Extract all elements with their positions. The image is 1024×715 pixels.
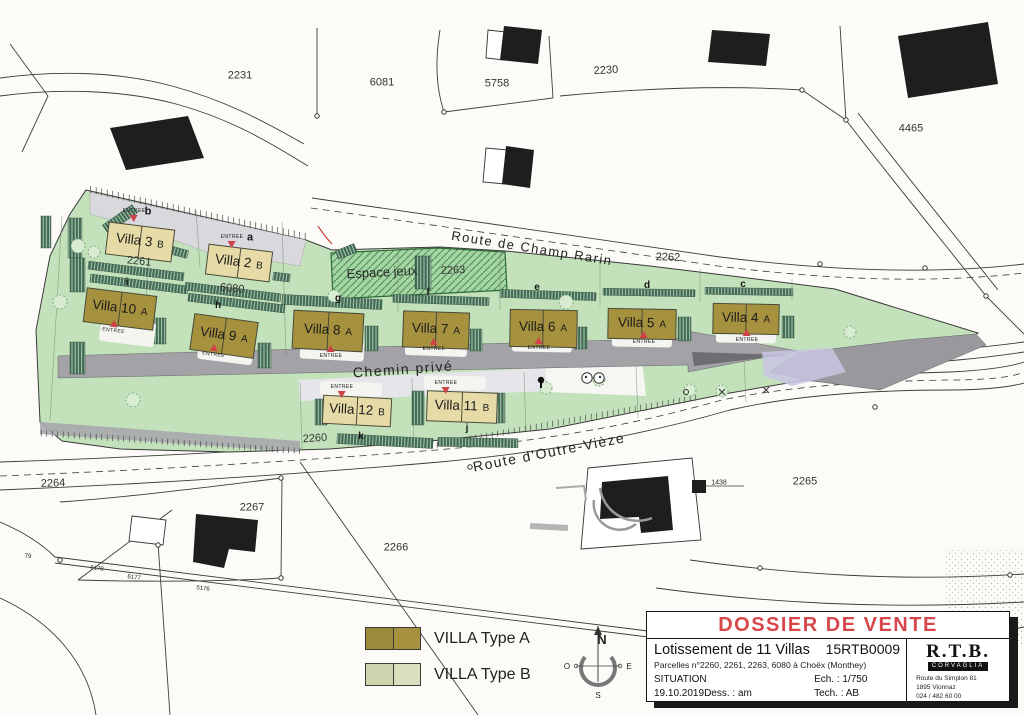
- site-plan-drawing: [0, 0, 1024, 715]
- parcel-label-2263: 2263: [441, 265, 466, 277]
- playground-label: Espace jeux: [346, 264, 417, 281]
- entrance-label: ENTREE: [736, 337, 759, 342]
- title-block-info: Lotissement de 11 Villas 15RTB0009 Parce…: [647, 639, 906, 701]
- entrance-marker-villa-5: ENTREE: [631, 331, 658, 345]
- compass-east-label: E: [626, 662, 631, 671]
- entrance-triangle-icon: [743, 329, 751, 336]
- villa-name: Villa 4: [722, 310, 759, 326]
- project-name: Lotissement de 11 Villas: [654, 642, 810, 658]
- villa-8-label: Villa 8A: [304, 322, 353, 339]
- entrance-label: ENTREE: [123, 208, 146, 213]
- company-address: Route du Simplon 81 1895 Vionnaz 024 / 4…: [912, 674, 977, 701]
- parcel-label-6081: 6081: [370, 78, 394, 89]
- legend-label-type-a: VILLA Type A: [434, 630, 530, 648]
- entrance-label: ENTREE: [221, 234, 244, 239]
- entrance-label: ENTREE: [435, 380, 458, 385]
- entrance-triangle-icon: [442, 387, 450, 394]
- strip-letter-b: b: [145, 207, 152, 218]
- entrance-marker-villa-4: ENTREE: [734, 329, 761, 343]
- villa-type: A: [345, 327, 352, 338]
- villa-6-label: Villa 6A: [519, 320, 567, 335]
- villa-name: Villa 12: [329, 401, 374, 418]
- parcel-label-2262: 2262: [656, 252, 681, 264]
- entrance-marker-a: ENTREE: [219, 234, 246, 248]
- parcel-label-2230: 2230: [593, 65, 618, 77]
- entrance-marker-villa-7: ENTREE: [421, 338, 448, 352]
- title-block-header: DOSSIER DE VENTE: [647, 612, 1009, 639]
- villa-type: B: [482, 403, 489, 414]
- parcel-label-2265: 2265: [793, 477, 817, 488]
- company-logo-bar: CORVAGLIA: [928, 662, 988, 671]
- entrance-label: ENTREE: [633, 339, 656, 344]
- parcel-label-2231: 2231: [228, 71, 252, 82]
- company-box: R.T.B. CORVAGLIA Route du Simplon 81 189…: [906, 639, 1009, 701]
- entrance-triangle-icon: [327, 345, 335, 352]
- parcel-label-2260: 2260: [302, 433, 327, 446]
- legend-row-type-a: VILLA Type A: [365, 627, 531, 650]
- strip-letter-c: c: [740, 280, 746, 290]
- scale-label: Ech. : 1/750: [814, 674, 900, 685]
- entrance-triangle-icon: [430, 338, 438, 345]
- villa-type-b-swatch: [365, 663, 421, 686]
- villa-name: Villa 11: [434, 397, 478, 413]
- entrance-label: ENTREE: [528, 345, 551, 350]
- entrance-triangle-icon: [338, 391, 346, 398]
- villa-type: A: [560, 323, 567, 334]
- villa-type: A: [453, 326, 460, 337]
- parcel-label-1438: 1438: [711, 480, 727, 487]
- parcel-label-2264: 2264: [41, 478, 66, 490]
- technician-label: Tech. : AB: [814, 688, 900, 699]
- company-logo-text: R.T.B.: [926, 642, 990, 661]
- parcel-label-4465: 4465: [899, 124, 923, 135]
- entrance-triangle-icon: [110, 320, 119, 328]
- strip-letter-d: d: [644, 281, 650, 291]
- legend: VILLA Type A VILLA Type B: [365, 627, 531, 699]
- villa-type: B: [255, 260, 263, 272]
- compass-south-label: S: [595, 691, 600, 700]
- site-plan-sheet: Route de Champ Rarin Chemin privé Route …: [0, 0, 1024, 715]
- entrance-triangle-icon: [130, 215, 138, 222]
- villa-type: A: [763, 314, 770, 325]
- parcel-label-2266: 2266: [384, 543, 408, 554]
- entrance-marker-villa-6: ENTREE: [526, 337, 553, 351]
- parcel-label-79: 79: [25, 554, 32, 560]
- entrance-triangle-icon: [640, 331, 648, 338]
- entrance-triangle-icon: [210, 344, 219, 352]
- entrance-label: ENTREE: [320, 353, 343, 358]
- entrance-marker-villa-11: ENTREE: [433, 380, 460, 394]
- entrance-marker-b: ENTREE: [121, 208, 148, 222]
- parcel-label-2267: 2267: [240, 503, 264, 514]
- villa-type: A: [659, 319, 666, 330]
- legend-row-type-b: VILLA Type B: [365, 663, 531, 686]
- date-label: 19.10.2019: [654, 688, 704, 699]
- compass-west-label: O: [564, 662, 570, 671]
- phase-label: SITUATION: [654, 674, 707, 685]
- compass-north-label: N: [597, 632, 606, 647]
- villa-5-label: Villa 5A: [618, 316, 666, 331]
- villa-type: B: [378, 407, 385, 418]
- document-number: 15RTB0009: [826, 641, 900, 657]
- entrance-marker-villa-12: ENTREE: [329, 384, 356, 398]
- legend-label-type-b: VILLA Type B: [434, 666, 531, 684]
- villa-4-label: Villa 4A: [722, 311, 770, 326]
- north-arrow-compass: N O E S: [558, 618, 650, 710]
- entrance-triangle-icon: [535, 337, 543, 344]
- villa-type: B: [156, 239, 164, 251]
- entrance-label: ENTREE: [331, 384, 354, 389]
- entrance-label: ENTREE: [423, 346, 446, 351]
- parcel-label-5758: 5758: [485, 79, 509, 90]
- villa-name: Villa 5: [618, 315, 655, 331]
- strip-letter-e: e: [534, 283, 540, 293]
- entrance-marker-villa-8: ENTREE: [318, 345, 345, 359]
- strip-letter-i: i: [126, 278, 129, 288]
- strip-letter-a: a: [247, 233, 253, 244]
- villa-11-label: Villa 11B: [434, 398, 489, 414]
- villa-name: Villa 7: [412, 320, 449, 336]
- villa-type: A: [140, 307, 148, 319]
- company-phone: 024 / 482 60 00: [916, 693, 961, 700]
- strip-letter-g: g: [335, 294, 341, 304]
- villa-name: Villa 6: [519, 319, 556, 335]
- villa-name: Villa 8: [304, 321, 341, 338]
- company-street: Route du Simplon 81: [916, 675, 977, 682]
- villa-type-a-swatch: [365, 627, 421, 650]
- compass-drawing: N O E S: [558, 618, 650, 710]
- document-title: DOSSIER DE VENTE: [718, 614, 938, 637]
- villa-12-label: Villa 12B: [329, 402, 385, 419]
- strip-letter-f: f: [426, 288, 429, 298]
- draftsman-label: Dess. : am: [704, 688, 814, 699]
- company-city: 1895 Vionnaz: [916, 684, 956, 691]
- strip-letter-j: j: [466, 424, 469, 434]
- villa-7-label: Villa 7A: [412, 321, 461, 337]
- title-block: DOSSIER DE VENTE Lotissement de 11 Villa…: [646, 611, 1010, 702]
- parcels-line: Parcelles n°2260, 2261, 2263, 6080 à Cho…: [654, 660, 900, 670]
- strip-letter-h: h: [215, 301, 221, 311]
- entrance-triangle-icon: [228, 241, 236, 248]
- strip-letter-k: k: [358, 432, 364, 442]
